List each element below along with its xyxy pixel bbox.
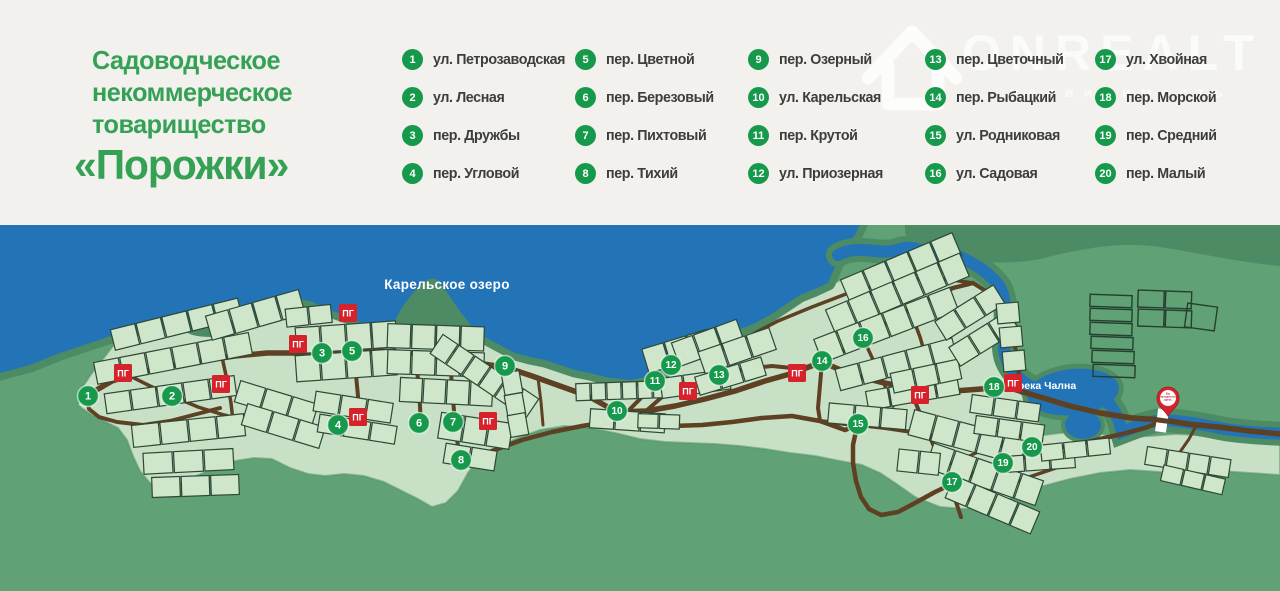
land-plot bbox=[913, 364, 939, 388]
legend-number-badge: 12 bbox=[748, 163, 769, 184]
legend-item-15: 15ул. Родниковая bbox=[925, 125, 1069, 146]
land-plot bbox=[308, 304, 332, 324]
map-marker-3: 3 bbox=[312, 343, 333, 364]
map-marker-5: 5 bbox=[342, 341, 363, 362]
legend-item-5: 5пер. Цветной bbox=[575, 49, 719, 70]
map-marker-14: 14 bbox=[812, 351, 833, 372]
lake-label: Карельское озеро bbox=[384, 277, 510, 292]
legend-column-3: 9пер. Озерный10ул. Карельская11пер. Крут… bbox=[748, 49, 888, 201]
legend-item-17: 17ул. Хвойная bbox=[1095, 49, 1221, 70]
map-marker-15: 15 bbox=[848, 414, 869, 435]
legend-number-badge: 4 bbox=[402, 163, 423, 184]
map-marker-17: 17 bbox=[942, 472, 963, 493]
land-plot bbox=[399, 377, 422, 402]
land-plot bbox=[607, 382, 622, 399]
legend-street-label: пер. Березовый bbox=[606, 89, 714, 106]
legend-number-badge: 6 bbox=[575, 87, 596, 108]
svg-text:2: 2 bbox=[169, 391, 175, 403]
land-plot bbox=[204, 449, 234, 471]
svg-text:ПГ: ПГ bbox=[215, 380, 227, 390]
land-plot bbox=[461, 326, 485, 351]
land-plot bbox=[423, 379, 446, 404]
land-plot bbox=[211, 474, 240, 495]
legend-item-8: 8пер. Тихий bbox=[575, 163, 719, 184]
map-marker-10: 10 bbox=[607, 401, 628, 422]
fire-hydrant-marker-1: ПГ bbox=[114, 364, 132, 382]
land-plot bbox=[999, 326, 1023, 348]
map-marker-4: 4 bbox=[328, 415, 349, 436]
svg-text:7: 7 bbox=[450, 417, 456, 429]
legend-column-1: 1ул. Петрозаводская2ул. Лесная3пер. Друж… bbox=[402, 49, 572, 201]
land-plot bbox=[104, 390, 132, 413]
legend-item-16: 16ул. Садовая bbox=[925, 163, 1069, 184]
map-marker-6: 6 bbox=[409, 413, 430, 434]
land-plot bbox=[152, 477, 181, 498]
fire-hydrant-marker-10: ПГ bbox=[1004, 374, 1022, 392]
fire-hydrant-marker-4: ПГ bbox=[339, 304, 357, 322]
legend-number-badge: 15 bbox=[925, 125, 946, 146]
legend-number-badge: 16 bbox=[925, 163, 946, 184]
legend-number-badge: 1 bbox=[402, 49, 423, 70]
legend-number-badge: 3 bbox=[402, 125, 423, 146]
svg-text:16: 16 bbox=[857, 333, 869, 344]
land-plot bbox=[216, 414, 245, 439]
land-plot bbox=[387, 350, 411, 375]
svg-text:13: 13 bbox=[713, 370, 725, 381]
legend-item-6: 6пер. Березовый bbox=[575, 87, 719, 108]
map-marker-2: 2 bbox=[162, 386, 183, 407]
svg-text:10: 10 bbox=[611, 406, 623, 417]
land-plot bbox=[880, 408, 907, 430]
land-plot bbox=[412, 324, 436, 349]
svg-text:ПГ: ПГ bbox=[292, 340, 304, 350]
you-are-here-text: здесь bbox=[1164, 398, 1172, 402]
map-marker-18: 18 bbox=[984, 377, 1005, 398]
legend-street-label: пер. Малый bbox=[1126, 165, 1205, 182]
land-plot bbox=[143, 452, 173, 474]
legend-street-label: ул. Садовая bbox=[956, 165, 1037, 182]
map-marker-7: 7 bbox=[443, 412, 464, 433]
map-marker-9: 9 bbox=[495, 356, 516, 377]
svg-text:ПГ: ПГ bbox=[791, 369, 803, 379]
legend-number-badge: 17 bbox=[1095, 49, 1116, 70]
legend-street-label: пер. Дружбы bbox=[433, 127, 520, 144]
land-plot bbox=[918, 451, 940, 475]
svg-text:4: 4 bbox=[335, 420, 342, 432]
legend-item-3: 3пер. Дружбы bbox=[402, 125, 572, 146]
map-marker-13: 13 bbox=[709, 365, 730, 386]
land-plot bbox=[188, 417, 217, 442]
legend-number-badge: 7 bbox=[575, 125, 596, 146]
map-marker-16: 16 bbox=[853, 328, 874, 349]
svg-text:12: 12 bbox=[665, 360, 677, 371]
land-plot bbox=[974, 416, 998, 437]
map-marker-8: 8 bbox=[451, 450, 472, 471]
svg-text:ПГ: ПГ bbox=[342, 309, 354, 319]
legend-item-4: 4пер. Угловой bbox=[402, 163, 572, 184]
snt-porozhki-map-poster: ONREALT недвижимость Садоводческое неком… bbox=[0, 0, 1280, 591]
legend-item-20: 20пер. Малый bbox=[1095, 163, 1221, 184]
fire-hydrant-marker-2: ПГ bbox=[212, 375, 230, 393]
svg-text:5: 5 bbox=[349, 346, 355, 358]
legend-item-9: 9пер. Озерный bbox=[748, 49, 888, 70]
legend-street-label: пер. Цветной bbox=[606, 51, 694, 68]
land-plot bbox=[659, 414, 679, 429]
fire-hydrant-marker-3: ПГ bbox=[289, 335, 307, 353]
svg-text:11: 11 bbox=[650, 376, 661, 387]
legend-street-label: пер. Тихий bbox=[606, 165, 678, 182]
fire-hydrant-marker-8: ПГ bbox=[788, 364, 806, 382]
legend-item-12: 12ул. Приозерная bbox=[748, 163, 888, 184]
legend-column-5: 17ул. Хвойная18пер. Морской19пер. Средни… bbox=[1095, 49, 1221, 201]
legend-street-label: пер. Угловой bbox=[433, 165, 519, 182]
land-plot bbox=[576, 383, 591, 400]
legend-street-label: пер. Озерный bbox=[779, 51, 872, 68]
land-plot bbox=[997, 419, 1021, 440]
map-marker-11: 11 bbox=[645, 371, 666, 392]
land-plot bbox=[1064, 440, 1088, 458]
fire-hydrant-marker-6: ПГ bbox=[479, 412, 497, 430]
legend-item-18: 18пер. Морской bbox=[1095, 87, 1221, 108]
land-plot bbox=[387, 324, 411, 349]
legend-item-2: 2ул. Лесная bbox=[402, 87, 572, 108]
legend-number-badge: 20 bbox=[1095, 163, 1116, 184]
land-plot bbox=[1087, 438, 1111, 456]
land-plot bbox=[622, 382, 637, 399]
legend-street-label: ул. Хвойная bbox=[1126, 51, 1207, 68]
legend-item-1: 1ул. Петрозаводская bbox=[402, 49, 572, 70]
legend-number-badge: 19 bbox=[1095, 125, 1116, 146]
legend-number-badge: 14 bbox=[925, 87, 946, 108]
land-plot bbox=[173, 450, 203, 472]
legend-number-badge: 9 bbox=[748, 49, 769, 70]
legend-item-7: 7пер. Пихтовый bbox=[575, 125, 719, 146]
svg-text:ПГ: ПГ bbox=[682, 387, 694, 397]
land-plot bbox=[446, 380, 469, 405]
land-plot bbox=[1208, 457, 1231, 478]
svg-text:14: 14 bbox=[816, 356, 828, 367]
svg-text:ПГ: ПГ bbox=[1007, 379, 1019, 389]
land-plot bbox=[285, 307, 309, 327]
land-plot bbox=[897, 449, 919, 473]
street-legend: 1ул. Петрозаводская2ул. Лесная3пер. Друж… bbox=[0, 0, 1280, 225]
land-plot bbox=[469, 447, 497, 471]
land-plot bbox=[1002, 350, 1026, 372]
svg-text:18: 18 bbox=[988, 382, 1000, 393]
legend-street-label: пер. Морской bbox=[1126, 89, 1216, 106]
svg-text:15: 15 bbox=[852, 419, 864, 430]
map-marker-12: 12 bbox=[661, 355, 682, 376]
legend-number-badge: 11 bbox=[748, 125, 769, 146]
land-plot bbox=[181, 475, 210, 496]
legend-street-label: ул. Карельская bbox=[779, 89, 881, 106]
legend-item-10: 10ул. Карельская bbox=[748, 87, 888, 108]
legend-street-label: ул. Приозерная bbox=[779, 165, 883, 182]
land-plot bbox=[131, 423, 160, 448]
land-plot bbox=[993, 398, 1017, 419]
legend-column-4: 13пер. Цветочный14пер. Рыбацкий15ул. Род… bbox=[925, 49, 1069, 201]
legend-street-label: ул. Лесная bbox=[433, 89, 504, 106]
svg-text:ПГ: ПГ bbox=[117, 369, 129, 379]
land-plot bbox=[638, 414, 658, 429]
map-marker-20: 20 bbox=[1022, 437, 1043, 458]
header: ONREALT недвижимость Садоводческое неком… bbox=[0, 0, 1280, 225]
site-map: Карельское озеро река Чална ПГПГПГПГПГПГ… bbox=[0, 225, 1280, 591]
legend-number-badge: 10 bbox=[748, 87, 769, 108]
legend-item-13: 13пер. Цветочный bbox=[925, 49, 1069, 70]
land-plot bbox=[1040, 443, 1064, 461]
legend-number-badge: 18 bbox=[1095, 87, 1116, 108]
land-plot bbox=[224, 333, 253, 359]
legend-street-label: пер. Крутой bbox=[779, 127, 858, 144]
svg-text:ПГ: ПГ bbox=[914, 391, 926, 401]
fire-hydrant-marker-5: ПГ bbox=[349, 408, 367, 426]
land-plot bbox=[146, 348, 175, 374]
fire-hydrant-marker-7: ПГ bbox=[679, 382, 697, 400]
land-plot bbox=[198, 338, 227, 364]
svg-text:17: 17 bbox=[946, 477, 958, 488]
svg-text:6: 6 bbox=[416, 418, 422, 430]
svg-text:19: 19 bbox=[997, 458, 1009, 469]
legend-number-badge: 2 bbox=[402, 87, 423, 108]
legend-item-14: 14пер. Рыбацкий bbox=[925, 87, 1069, 108]
legend-street-label: пер. Средний bbox=[1126, 127, 1217, 144]
svg-text:ПГ: ПГ bbox=[482, 417, 494, 427]
legend-number-badge: 8 bbox=[575, 163, 596, 184]
land-plot bbox=[996, 302, 1020, 324]
legend-item-11: 11пер. Крутой bbox=[748, 125, 888, 146]
legend-column-2: 5пер. Цветной6пер. Березовый7пер. Пихтов… bbox=[575, 49, 719, 201]
svg-text:8: 8 bbox=[458, 455, 464, 467]
land-plot bbox=[130, 387, 158, 410]
river-label: река Чална bbox=[1018, 380, 1076, 392]
svg-text:ПГ: ПГ bbox=[352, 413, 364, 423]
legend-street-label: пер. Цветочный bbox=[956, 51, 1064, 68]
svg-text:9: 9 bbox=[502, 361, 508, 373]
land-plot bbox=[313, 391, 341, 415]
land-plot bbox=[507, 413, 529, 438]
legend-street-label: пер. Пихтовый bbox=[606, 127, 706, 144]
land-plot bbox=[365, 399, 393, 423]
legend-street-label: ул. Родниковая bbox=[956, 127, 1060, 144]
land-plot bbox=[591, 383, 606, 400]
svg-text:20: 20 bbox=[1026, 442, 1038, 453]
map-marker-19: 19 bbox=[993, 453, 1014, 474]
land-plot bbox=[370, 422, 398, 444]
svg-text:3: 3 bbox=[319, 348, 325, 360]
legend-street-label: ул. Петрозаводская bbox=[433, 51, 565, 68]
legend-street-label: пер. Рыбацкий bbox=[956, 89, 1056, 106]
legend-item-19: 19пер. Средний bbox=[1095, 125, 1221, 146]
land-plot bbox=[183, 379, 211, 402]
legend-number-badge: 5 bbox=[575, 49, 596, 70]
svg-text:1: 1 bbox=[85, 391, 91, 403]
map-marker-1: 1 bbox=[78, 386, 99, 407]
land-plot bbox=[172, 343, 201, 369]
land-plot bbox=[160, 420, 189, 445]
land-plot bbox=[1016, 401, 1040, 422]
fire-hydrant-marker-9: ПГ bbox=[911, 386, 929, 404]
map-canvas: Карельское озеро река Чална ПГПГПГПГПГПГ… bbox=[0, 225, 1280, 591]
legend-number-badge: 13 bbox=[925, 49, 946, 70]
